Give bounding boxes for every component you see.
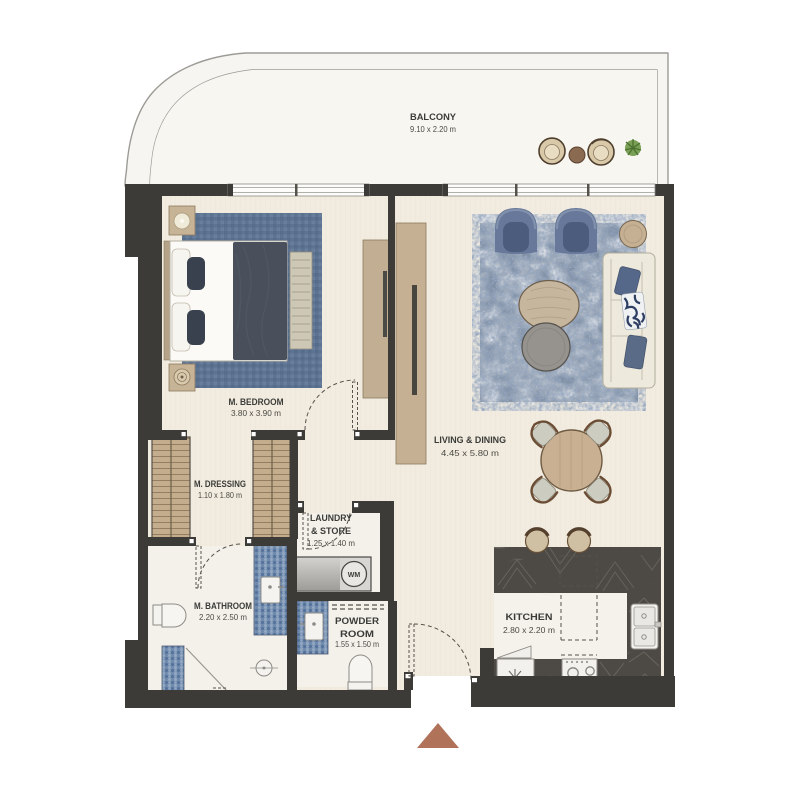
svg-text:M. DRESSING: M. DRESSING bbox=[194, 479, 246, 489]
svg-text:KITCHEN: KITCHEN bbox=[506, 612, 553, 622]
svg-text:ROOM: ROOM bbox=[340, 629, 374, 639]
svg-text:LIVING & DINING: LIVING & DINING bbox=[434, 435, 506, 445]
svg-text:2.80 x 2.20 m: 2.80 x 2.20 m bbox=[503, 626, 555, 635]
svg-text:POWDER: POWDER bbox=[335, 616, 380, 626]
svg-text:1.55 x 1.50 m: 1.55 x 1.50 m bbox=[335, 640, 379, 649]
svg-text:1.25 x 1.40 m: 1.25 x 1.40 m bbox=[307, 539, 355, 548]
svg-text:M. BEDROOM: M. BEDROOM bbox=[229, 397, 284, 407]
svg-text:4.45 x 5.80 m: 4.45 x 5.80 m bbox=[441, 449, 499, 458]
svg-text:LAUNDRY: LAUNDRY bbox=[310, 513, 352, 523]
svg-text:3.80 x 3.90 m: 3.80 x 3.90 m bbox=[231, 409, 281, 418]
svg-text:WM: WM bbox=[348, 572, 361, 579]
svg-text:BALCONY: BALCONY bbox=[410, 112, 456, 122]
svg-text:9.10 x 2.20 m: 9.10 x 2.20 m bbox=[410, 125, 456, 134]
svg-text:2.20 x 2.50 m: 2.20 x 2.50 m bbox=[199, 613, 247, 622]
svg-text:& STORE: & STORE bbox=[311, 526, 351, 536]
svg-text:M. BATHROOM: M. BATHROOM bbox=[194, 601, 252, 611]
svg-text:1.10 x 1.80 m: 1.10 x 1.80 m bbox=[198, 491, 242, 500]
